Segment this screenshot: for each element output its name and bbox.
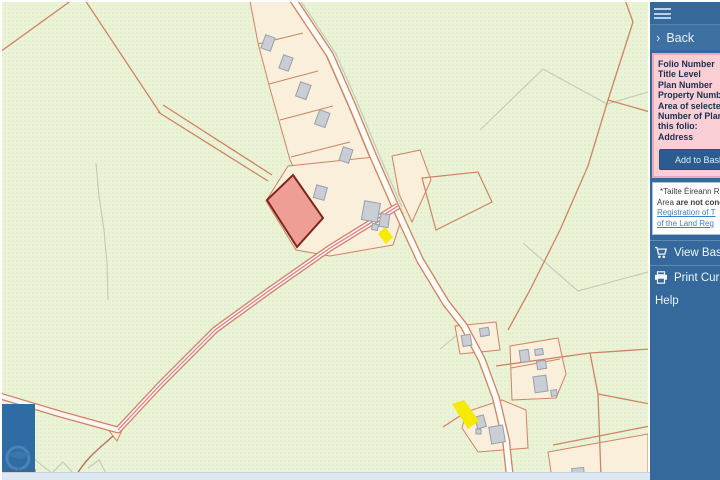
- cart-icon: [654, 246, 668, 259]
- field-label: Folio Number: [658, 59, 720, 69]
- map-viewport[interactable]: Tailte Éireann: [2, 2, 648, 474]
- disclaimer-line1: *Tailte Éireann Re: [657, 187, 720, 198]
- add-to-basket-button[interactable]: Add to Basket: [659, 149, 720, 170]
- back-button[interactable]: › Back: [650, 24, 720, 50]
- help-link[interactable]: Help: [650, 290, 720, 312]
- sidebar: › Back Folio NumberTitle LevelPlan Numbe…: [650, 2, 720, 480]
- land-registry-link[interactable]: of the Land Reg: [657, 219, 714, 228]
- printer-icon: [654, 271, 668, 284]
- field-label: Property Number: [658, 90, 720, 100]
- view-basket-button[interactable]: View Basket: [650, 240, 720, 265]
- menu-bar: [650, 2, 720, 24]
- chevron-right-icon: ›: [656, 30, 660, 45]
- print-label: Print Current: [674, 272, 720, 284]
- field-label: Title Level: [658, 69, 720, 79]
- field-label: this folio:: [658, 121, 720, 131]
- view-basket-label: View Basket: [674, 247, 720, 259]
- disclaimer-panel: *Tailte Éireann Re Area are not conc Reg…: [652, 182, 720, 234]
- registration-of-title-link[interactable]: Registration of T: [657, 208, 716, 217]
- folio-info-panel: Folio NumberTitle LevelPlan NumberProper…: [652, 53, 720, 178]
- field-label: Area of selected: [658, 101, 720, 111]
- back-label: Back: [666, 31, 694, 45]
- print-button[interactable]: Print Current: [650, 265, 720, 290]
- help-label: Help: [655, 295, 679, 307]
- field-label: Number of Plans in: [658, 111, 720, 121]
- logo-watermark: [2, 404, 35, 473]
- hamburger-menu-icon[interactable]: [654, 8, 671, 20]
- field-label: Address: [658, 132, 720, 142]
- horizontal-scrollbar[interactable]: [2, 472, 650, 480]
- disclaimer-line2: Area are not conc: [657, 198, 720, 209]
- folio-field-list: Folio NumberTitle LevelPlan NumberProper…: [658, 59, 720, 142]
- field-label: Plan Number: [658, 80, 720, 90]
